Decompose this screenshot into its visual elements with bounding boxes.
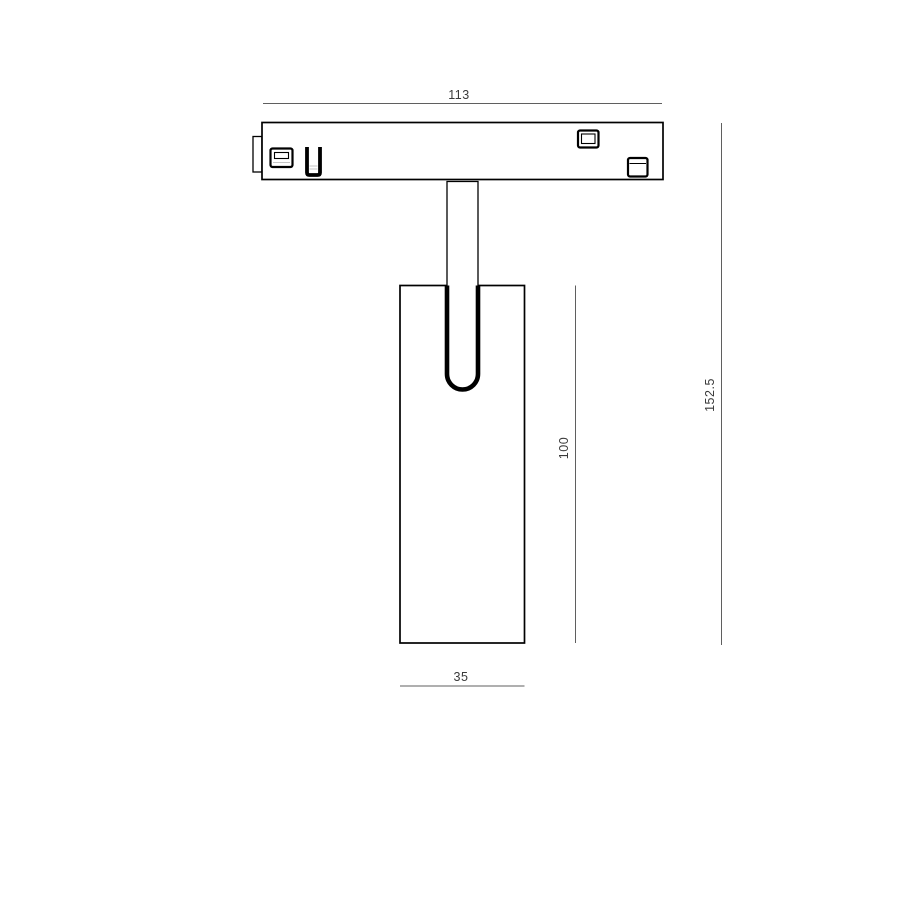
- connector-bottom-right-outer: [628, 158, 648, 177]
- dimension-body-height: 100: [557, 286, 576, 644]
- dim-label-body-width: 35: [454, 670, 469, 684]
- dim-label-overall-height: 152.5: [703, 378, 717, 412]
- dimension-body-width: 35: [400, 670, 525, 686]
- drawing-canvas: 113: [0, 0, 900, 900]
- stem: [447, 182, 478, 390]
- dim-label-track-width: 113: [448, 88, 469, 102]
- dimension-overall-height: 152.5: [703, 123, 722, 645]
- track-adapter: [253, 123, 663, 180]
- technical-drawing: 113: [0, 0, 900, 900]
- connector-bottom-right: [628, 158, 648, 177]
- dimension-track-width: 113: [263, 88, 662, 104]
- stem-outline: [447, 182, 478, 390]
- connector-left: [271, 149, 293, 168]
- dim-label-body-height: 100: [557, 437, 571, 459]
- connector-left-outer: [271, 149, 293, 168]
- connector-top-right: [578, 131, 599, 148]
- track-adapter-body: [262, 123, 663, 180]
- mounting-tab: [253, 137, 262, 173]
